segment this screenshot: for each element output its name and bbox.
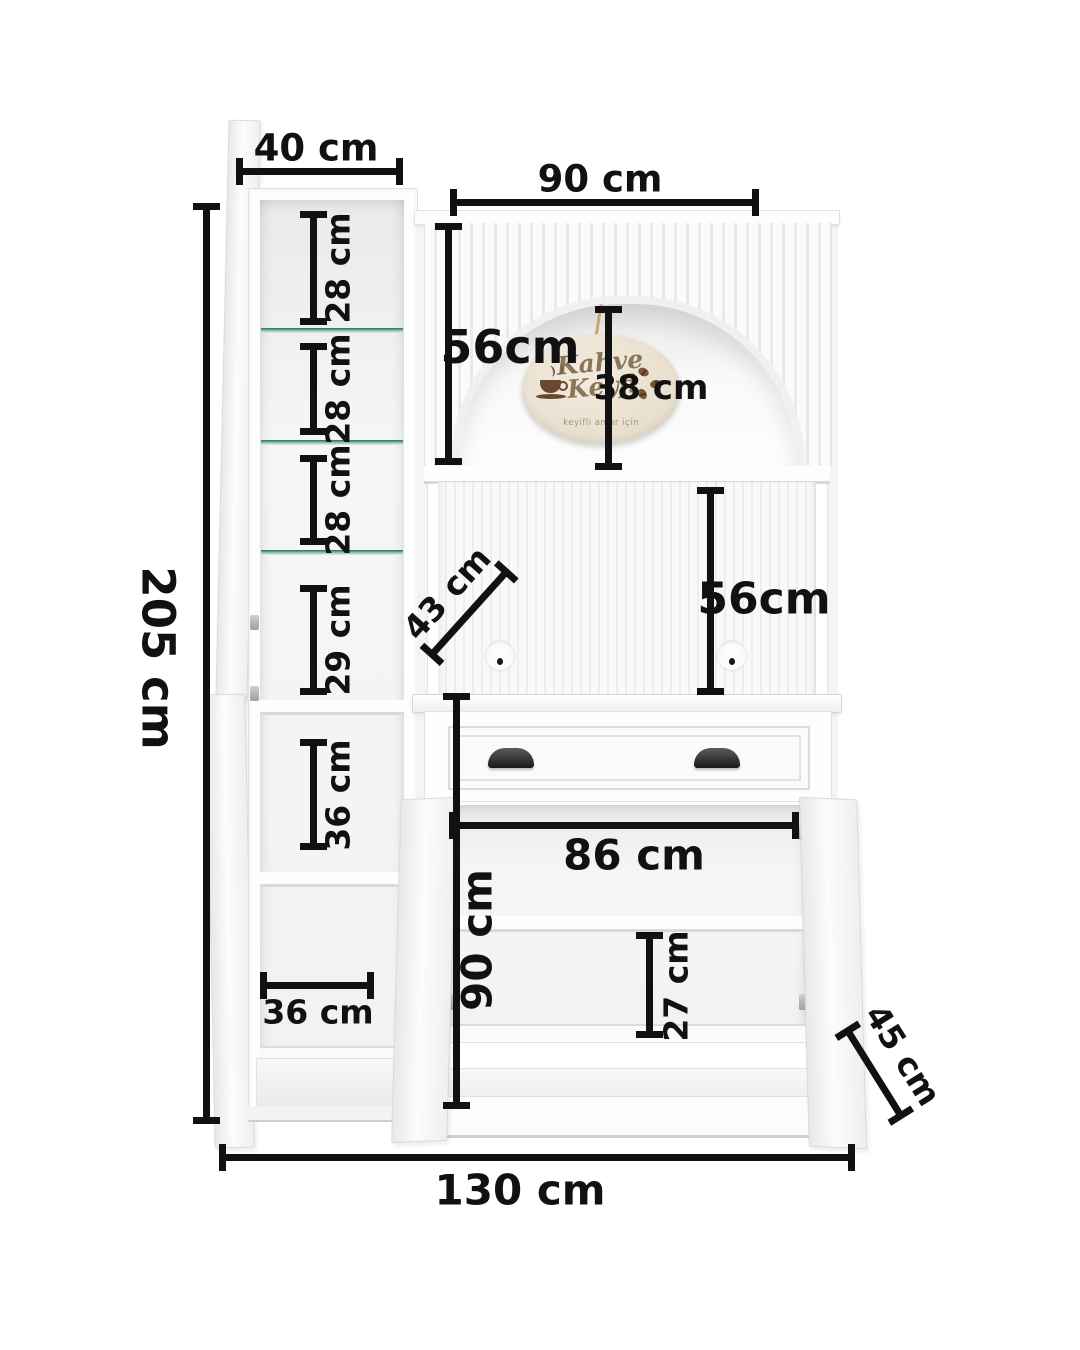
door-hinge	[250, 686, 259, 701]
furniture-dimension-diagram: Kahve Keyfi keyifli anlar için 40 cm 90 …	[0, 0, 1080, 1350]
dim-gap-29-label: 29 cm	[319, 584, 358, 695]
base-cabinet-open-door-right	[799, 797, 867, 1149]
dim-shelf-gap-3-line	[310, 457, 317, 543]
dim-total-width-line	[221, 1154, 853, 1161]
glass-shelf	[261, 328, 403, 333]
dim-total-height-line	[203, 205, 210, 1122]
dim-gap-29-line	[310, 587, 317, 693]
base-cabinet-open-door-left	[391, 797, 457, 1143]
cable-hole-right-dot	[729, 658, 735, 665]
base-cabinet-bottom	[448, 1024, 806, 1040]
dim-arch-height-label: 56cm	[440, 320, 579, 374]
dim-bottom-width-label: 36 cm	[262, 993, 373, 1032]
dim-base-depth-label: 45 cm	[857, 998, 949, 1113]
dim-mid-height-label: 56cm	[697, 574, 830, 625]
dim-base-shelf-gap-line	[646, 934, 653, 1036]
coffee-sign-subtitle: keyifli anlar için	[546, 418, 656, 428]
left-cabinet-plinth	[256, 1058, 410, 1110]
dim-gap-36-line	[310, 741, 317, 848]
wood-shelf	[260, 700, 404, 715]
dim-total-width-label: 130 cm	[435, 1166, 606, 1215]
dim-inner-width-label: 86 cm	[563, 831, 705, 880]
dim-inner-width-line	[451, 822, 797, 829]
dim-arch-inner-label: 38 cm	[594, 368, 709, 408]
dim-shelf-gap-3-label: 28 cm	[319, 444, 358, 555]
dim-gap-36-label: 36 cm	[319, 739, 358, 850]
dim-shelf-gap-2-label: 28 cm	[319, 333, 358, 444]
dim-bottom-width-line	[262, 982, 372, 989]
door-hinge	[250, 615, 259, 630]
dim-base-shelf-gap-label: 27 cm	[657, 930, 696, 1041]
dim-shelf-gap-1-line	[310, 213, 317, 323]
cable-hole-right	[717, 640, 747, 670]
dim-hutch-width-label: 90 cm	[538, 158, 663, 201]
base-cabinet-base-edge	[414, 1096, 840, 1138]
cable-hole-left-dot	[497, 658, 503, 665]
dim-shelf-gap-1-label: 28 cm	[319, 212, 358, 323]
coffee-saucer-icon	[536, 394, 566, 399]
dim-base-height-label: 90 cm	[453, 869, 502, 1011]
wood-shelf	[260, 872, 404, 887]
drawer-cup-handle-right	[694, 748, 740, 768]
drawer-cup-handle-left	[488, 748, 534, 768]
dim-shelf-gap-2-line	[310, 345, 317, 433]
dim-door-width-label: 40 cm	[254, 127, 379, 170]
base-cabinet-shelf	[448, 916, 806, 932]
cable-hole-left	[485, 640, 515, 670]
dim-total-height-label: 205 cm	[132, 566, 185, 749]
